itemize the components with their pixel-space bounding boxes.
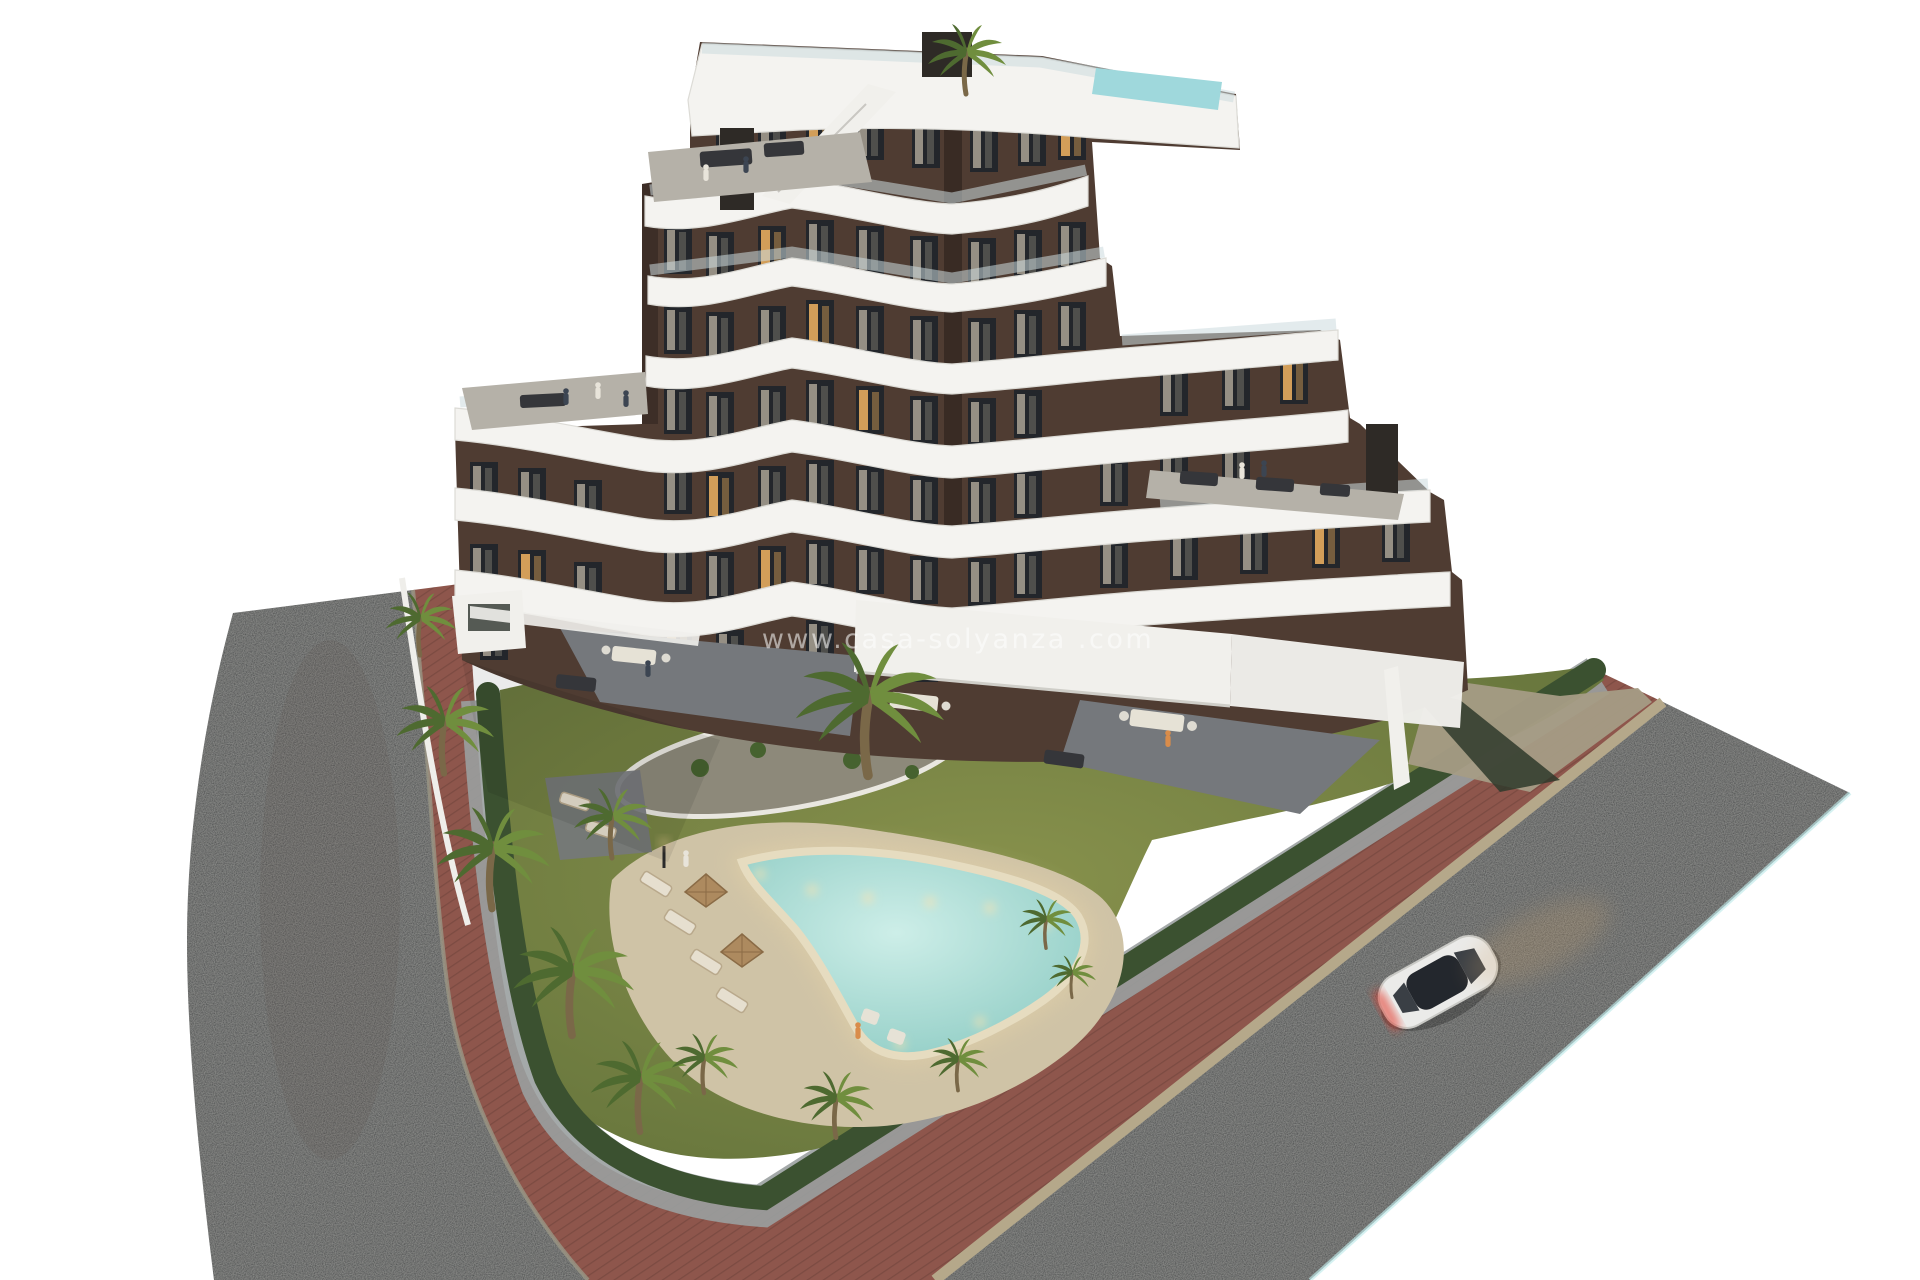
person <box>703 164 709 181</box>
chimney <box>1366 424 1398 502</box>
window <box>1014 390 1042 438</box>
window <box>968 478 996 526</box>
person <box>1261 460 1267 477</box>
window <box>806 380 834 428</box>
person <box>595 382 601 399</box>
window <box>664 306 692 354</box>
lit-window <box>706 472 734 520</box>
window <box>706 552 734 600</box>
chair <box>1119 711 1129 721</box>
window <box>1014 550 1042 598</box>
person <box>743 156 749 173</box>
window <box>1014 310 1042 358</box>
chair <box>602 646 611 655</box>
shrub <box>750 742 766 758</box>
person <box>1165 730 1171 747</box>
window <box>664 386 692 434</box>
chair <box>942 702 951 711</box>
person <box>623 390 629 407</box>
window <box>968 558 996 606</box>
window <box>856 546 884 594</box>
chair <box>1187 721 1197 731</box>
window <box>856 306 884 354</box>
road-sheen <box>260 640 400 1160</box>
person <box>855 1022 861 1039</box>
facade-recess-shadow <box>944 128 962 544</box>
person <box>645 660 651 677</box>
architectural-render-canvas: www.casa-solyanza .com <box>0 0 1920 1280</box>
window <box>806 540 834 588</box>
window <box>856 466 884 514</box>
window <box>910 396 938 444</box>
window <box>706 392 734 440</box>
shrub <box>905 765 919 779</box>
person <box>683 850 689 867</box>
scene: www.casa-solyanza .com <box>0 0 1920 1280</box>
window <box>1100 540 1128 588</box>
window <box>806 460 834 508</box>
person <box>1239 462 1245 479</box>
window <box>910 316 938 364</box>
window <box>1100 458 1128 506</box>
window <box>968 318 996 366</box>
window <box>1014 470 1042 518</box>
watermark-text: www.casa-solyanza .com <box>762 624 1154 655</box>
chair <box>662 654 671 663</box>
lit-window <box>856 386 884 434</box>
window <box>910 556 938 604</box>
person <box>563 388 569 405</box>
window <box>910 476 938 524</box>
window <box>1058 302 1086 350</box>
window <box>968 398 996 446</box>
